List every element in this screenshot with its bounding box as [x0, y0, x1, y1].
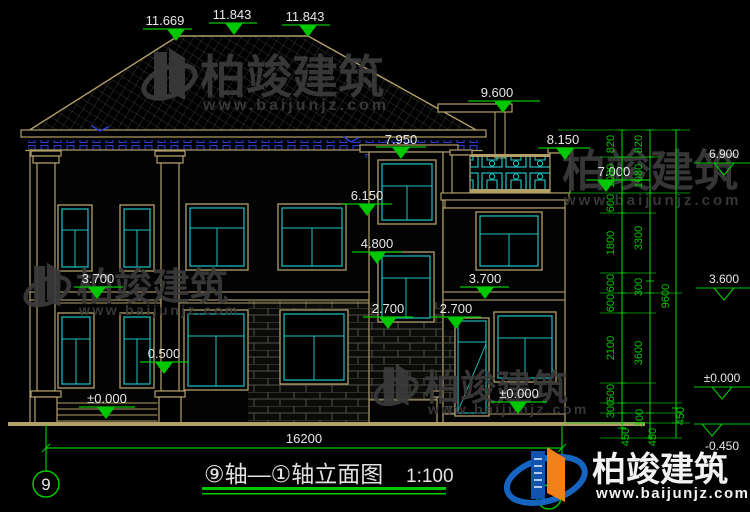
dim-label: 3600 — [633, 341, 645, 365]
svg-text:3.700: 3.700 — [82, 271, 115, 286]
dim-label: 9600 — [660, 284, 672, 308]
dim-label: 600 — [605, 294, 617, 312]
window — [184, 310, 248, 390]
brand-logo-url: www.baijunjz.com — [595, 485, 749, 502]
svg-text:±0.000: ±0.000 — [87, 391, 127, 406]
watermark-url: www.baijunjz.com — [78, 302, 240, 318]
svg-text:2.700: 2.700 — [372, 301, 405, 316]
dim-label: 450 — [647, 428, 659, 446]
svg-text:11.843: 11.843 — [213, 7, 252, 22]
dim-label: 3300 — [633, 226, 645, 250]
svg-text:±0.000: ±0.000 — [499, 386, 539, 401]
dim-labels-outer: 9600 450 — [660, 284, 687, 425]
dim-label: 300 — [633, 278, 645, 296]
svg-text:3.700: 3.700 — [469, 271, 502, 286]
dim-label: 820 — [633, 135, 645, 153]
window — [58, 313, 94, 388]
window — [378, 160, 436, 224]
title-block: ⑨轴—①轴立面图 1:100 — [202, 461, 454, 495]
window — [186, 204, 248, 270]
svg-text:4.800: 4.800 — [361, 236, 394, 251]
total-width-label: 16200 — [286, 431, 322, 446]
elevation-label: 3.600 — [709, 272, 739, 286]
dim-label: 1080 — [605, 164, 617, 188]
window — [476, 212, 542, 270]
axis-label: 9 — [41, 475, 50, 494]
svg-text:0.500: 0.500 — [148, 346, 181, 361]
title-underline-thin — [202, 493, 446, 495]
dim-label: 820 — [605, 135, 617, 153]
watermark-url: www.baijunjz.com — [563, 192, 741, 209]
dim-label: 600 — [605, 194, 617, 212]
balcony-railing — [458, 157, 554, 191]
window — [58, 205, 92, 271]
svg-text:11.843: 11.843 — [286, 9, 325, 24]
drawing-title: ⑨轴—①轴立面图 — [204, 461, 383, 487]
window — [120, 205, 154, 271]
svg-text:11.669: 11.669 — [146, 13, 185, 28]
dim-label: 450 — [620, 428, 632, 446]
drawing-scale: 1:100 — [406, 466, 454, 487]
svg-text:8.150: 8.150 — [547, 132, 580, 147]
ground-line — [8, 422, 645, 426]
drawing-surface: 柏竣建筑 www.baijunjz.com 柏竣建筑 www.baijunjz.… — [0, 0, 750, 512]
watermark-url: www.baijunjz.com — [427, 401, 589, 417]
dim-label: 300 — [605, 400, 617, 418]
dim-label: 300 — [634, 409, 646, 427]
svg-text:9.600: 9.600 — [481, 85, 514, 100]
cad-elevation-drawing: 柏竣建筑 www.baijunjz.com 柏竣建筑 www.baijunjz.… — [0, 0, 750, 512]
watermark-brand: 柏竣建筑 — [200, 51, 384, 103]
window — [280, 310, 348, 384]
brand-logo: 柏竣建筑 www.baijunjz.com — [502, 447, 750, 511]
watermark-url: www.baijunjz.com — [202, 97, 389, 114]
dim-label: 450 — [675, 407, 687, 425]
brand-logo-text: 柏竣建筑 — [592, 450, 728, 489]
window — [278, 204, 346, 270]
dim-label: 600 — [605, 274, 617, 292]
dim-label: 2100 — [605, 336, 617, 360]
elevation-label: 6.900 — [709, 147, 739, 161]
dim-label: 600 — [605, 384, 617, 402]
dim-label: 1080 — [633, 164, 645, 188]
elevation-label: ±0.000 — [704, 371, 741, 385]
svg-text:7.950: 7.950 — [385, 132, 418, 147]
elevation-marker: 11.843 — [282, 9, 330, 37]
title-underline — [202, 487, 446, 490]
brand-logo-icon — [502, 447, 590, 511]
svg-text:2.700: 2.700 — [440, 301, 473, 316]
elevation-marker: 11.843 — [209, 7, 257, 35]
dim-label: 1800 — [605, 231, 617, 255]
svg-text:6.150: 6.150 — [351, 188, 384, 203]
